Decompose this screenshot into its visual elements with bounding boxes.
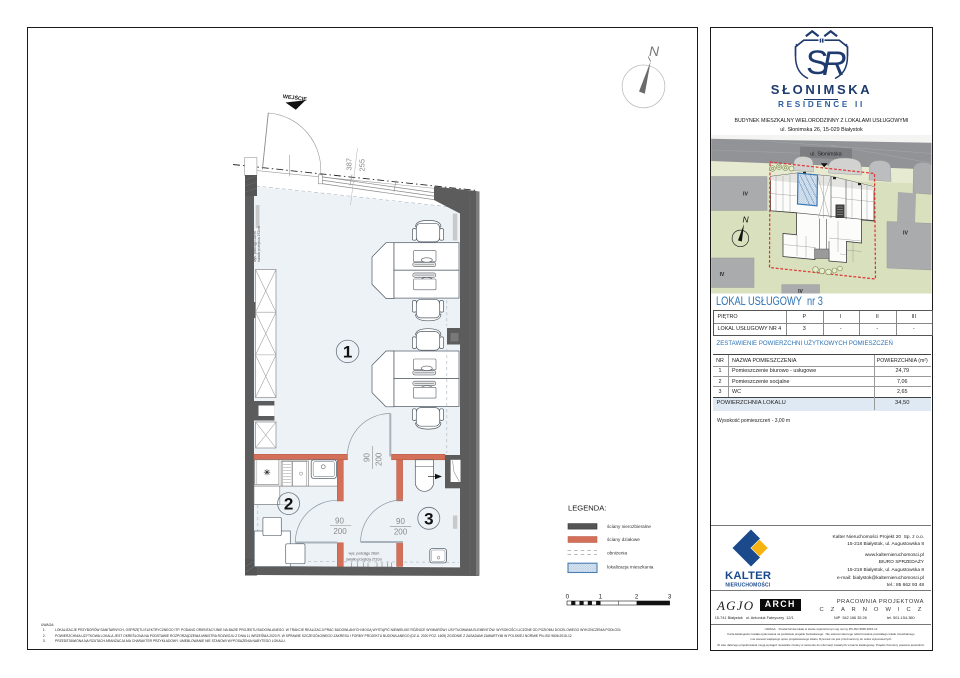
svg-text:IV: IV bbox=[743, 192, 748, 198]
svg-text:IV: IV bbox=[720, 272, 725, 278]
svg-text:LEGENDA:: LEGENDA: bbox=[568, 504, 606, 513]
svg-text:1: 1 bbox=[343, 343, 352, 362]
svg-text:lokalizacja mieszkania: lokalizacja mieszkania bbox=[607, 564, 654, 569]
svg-text:ściany nierozbieralne: ściany nierozbieralne bbox=[607, 524, 651, 529]
svg-text:387: 387 bbox=[345, 158, 354, 171]
svg-text:2: 2 bbox=[284, 495, 293, 514]
svg-text:wys. podciągu 28cm: wys. podciągu 28cm bbox=[349, 552, 380, 556]
svg-text:N: N bbox=[743, 215, 750, 225]
svg-text:90: 90 bbox=[335, 517, 344, 526]
svg-text:1: 1 bbox=[599, 594, 603, 601]
svg-text:90: 90 bbox=[363, 453, 372, 462]
svg-text:3: 3 bbox=[424, 509, 433, 528]
svg-text:NIERUCHOMOŚCI: NIERUCHOMOŚCI bbox=[725, 582, 770, 589]
svg-text:200: 200 bbox=[394, 527, 408, 536]
svg-text:200: 200 bbox=[375, 452, 384, 466]
svg-text:3: 3 bbox=[668, 594, 672, 601]
svg-text:IV: IV bbox=[903, 231, 908, 237]
svg-text:obniżenia: obniżenia bbox=[607, 550, 627, 555]
svg-text:światło przejścia 272cm: światło przejścia 272cm bbox=[257, 226, 261, 262]
svg-text:0: 0 bbox=[566, 594, 570, 601]
svg-text:N: N bbox=[649, 43, 660, 59]
svg-text:2: 2 bbox=[635, 594, 639, 601]
svg-text:ściany działowe: ściany działowe bbox=[607, 537, 640, 542]
svg-text:ul. Słonimska: ul. Słonimska bbox=[810, 151, 842, 157]
svg-text:90: 90 bbox=[396, 517, 405, 526]
svg-text:255: 255 bbox=[358, 159, 367, 172]
svg-text:światło przejścia 272cm: światło przejścia 272cm bbox=[346, 557, 382, 561]
svg-text:200: 200 bbox=[333, 527, 347, 536]
svg-text:R: R bbox=[822, 45, 847, 83]
svg-text:KALTER: KALTER bbox=[725, 570, 771, 582]
